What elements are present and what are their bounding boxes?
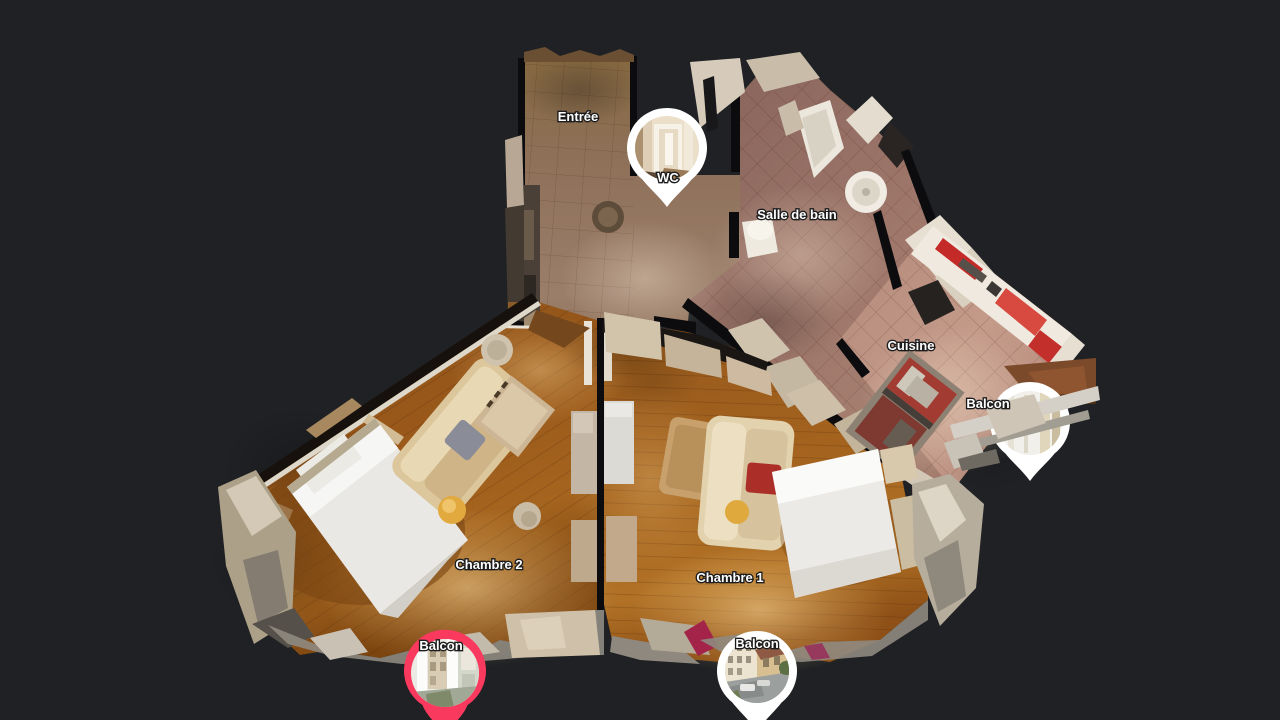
svg-text:Balcon: Balcon [735,636,778,651]
svg-text:Salle de bain: Salle de bain [757,207,837,222]
svg-text:Balcon: Balcon [419,638,462,653]
svg-text:WC: WC [657,170,679,185]
svg-text:Balcon: Balcon [966,396,1009,411]
svg-text:Chambre 1: Chambre 1 [696,570,763,585]
svg-text:Cuisine: Cuisine [888,338,935,353]
svg-text:Entrée: Entrée [558,109,598,124]
svg-text:Chambre 2: Chambre 2 [455,557,522,572]
